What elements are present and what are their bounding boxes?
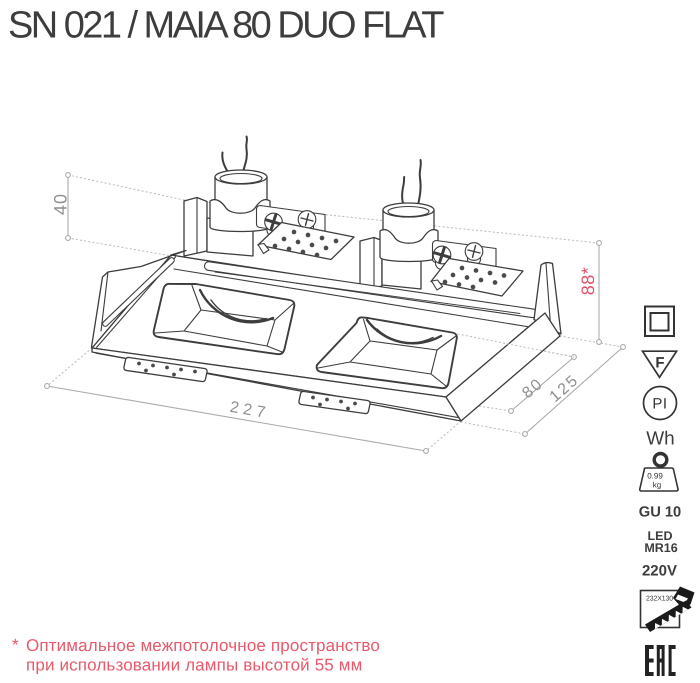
svg-text:Оптимальное межпотолочное прос: Оптимальное межпотолочное пространство — [26, 636, 380, 655]
svg-text:GU 10: GU 10 — [639, 505, 681, 521]
svg-text:при использовании лампы высото: при использовании лампы высотой 55 мм — [26, 655, 362, 674]
svg-text:*: * — [12, 636, 19, 655]
svg-text:MR16: MR16 — [644, 541, 677, 555]
svg-text:40: 40 — [51, 193, 71, 215]
svg-text:F: F — [655, 355, 664, 372]
svg-text:PI: PI — [652, 396, 667, 413]
svg-text:Wh: Wh — [646, 429, 675, 450]
svg-text:kg: kg — [653, 481, 661, 490]
svg-text:88*: 88* — [578, 267, 598, 296]
svg-text:0.99: 0.99 — [647, 472, 663, 481]
svg-text:SN 021 / MAIA 80 DUO FLAT: SN 021 / MAIA 80 DUO FLAT — [8, 5, 444, 47]
svg-text:232X130: 232X130 — [646, 595, 673, 602]
svg-text:220V: 220V — [642, 563, 677, 580]
